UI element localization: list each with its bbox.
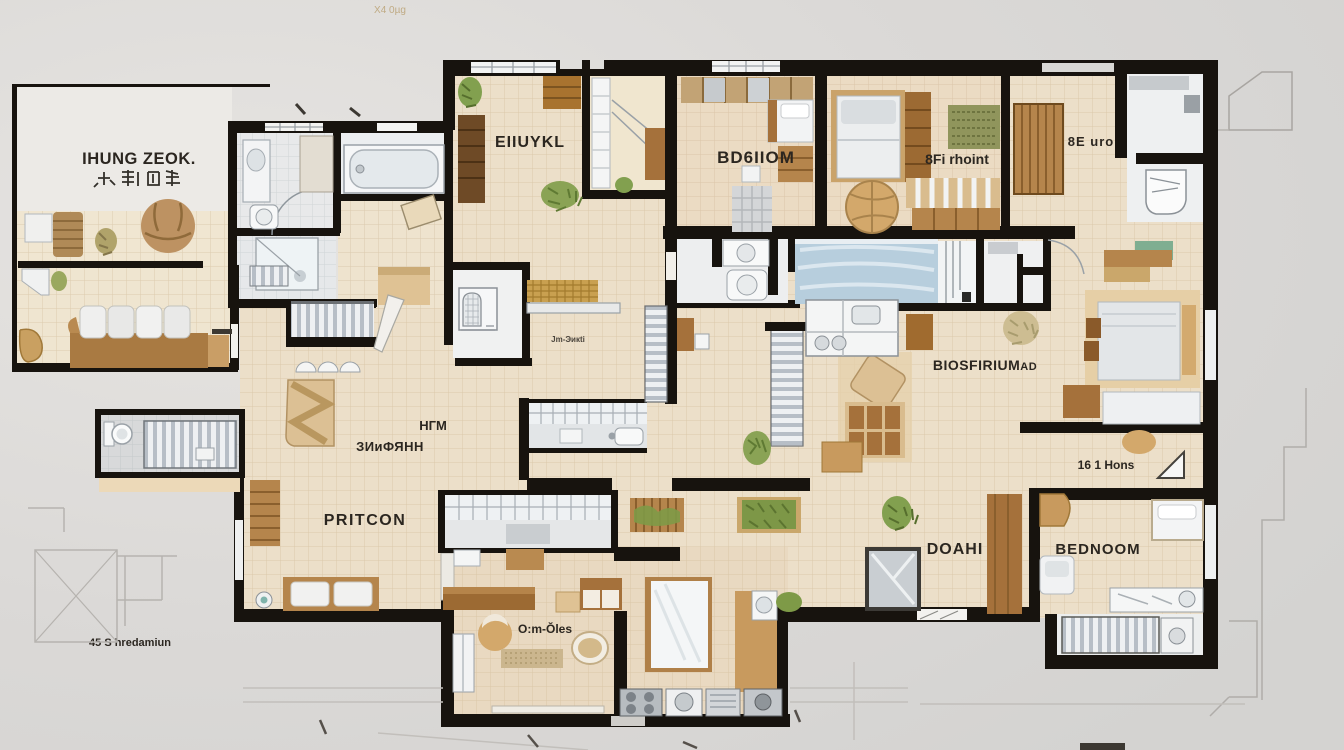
- svg-text:8Fi rhoint: 8Fi rhoint: [925, 151, 989, 167]
- svg-text:BD6IIOM: BD6IIOM: [717, 148, 795, 167]
- svg-text:НГM: НГM: [419, 418, 447, 433]
- svg-text:ЗИиФЯНН: ЗИиФЯНН: [356, 439, 424, 454]
- svg-text:45 S hredamiun: 45 S hredamiun: [89, 637, 171, 649]
- svg-text:DOAHI: DOAHI: [927, 541, 984, 558]
- svg-text:EIIUYKL: EIIUYKL: [495, 134, 565, 151]
- svg-text:8E uro: 8E uro: [1068, 134, 1114, 149]
- svg-text:BEDNOOM: BEDNOOM: [1055, 541, 1140, 558]
- svg-text:IHUNG ZEOK.: IHUNG ZEOK.: [82, 150, 196, 168]
- svg-text:Jm-Эикti: Jm-Эикti: [551, 335, 585, 344]
- svg-text:16 1 Hons: 16 1 Hons: [1078, 458, 1135, 472]
- svg-text:X4 0µg: X4 0µg: [374, 5, 406, 16]
- svg-text:O:m-Ŏles: O:m-Ŏles: [518, 621, 572, 636]
- svg-text:PRITCON: PRITCON: [324, 512, 407, 529]
